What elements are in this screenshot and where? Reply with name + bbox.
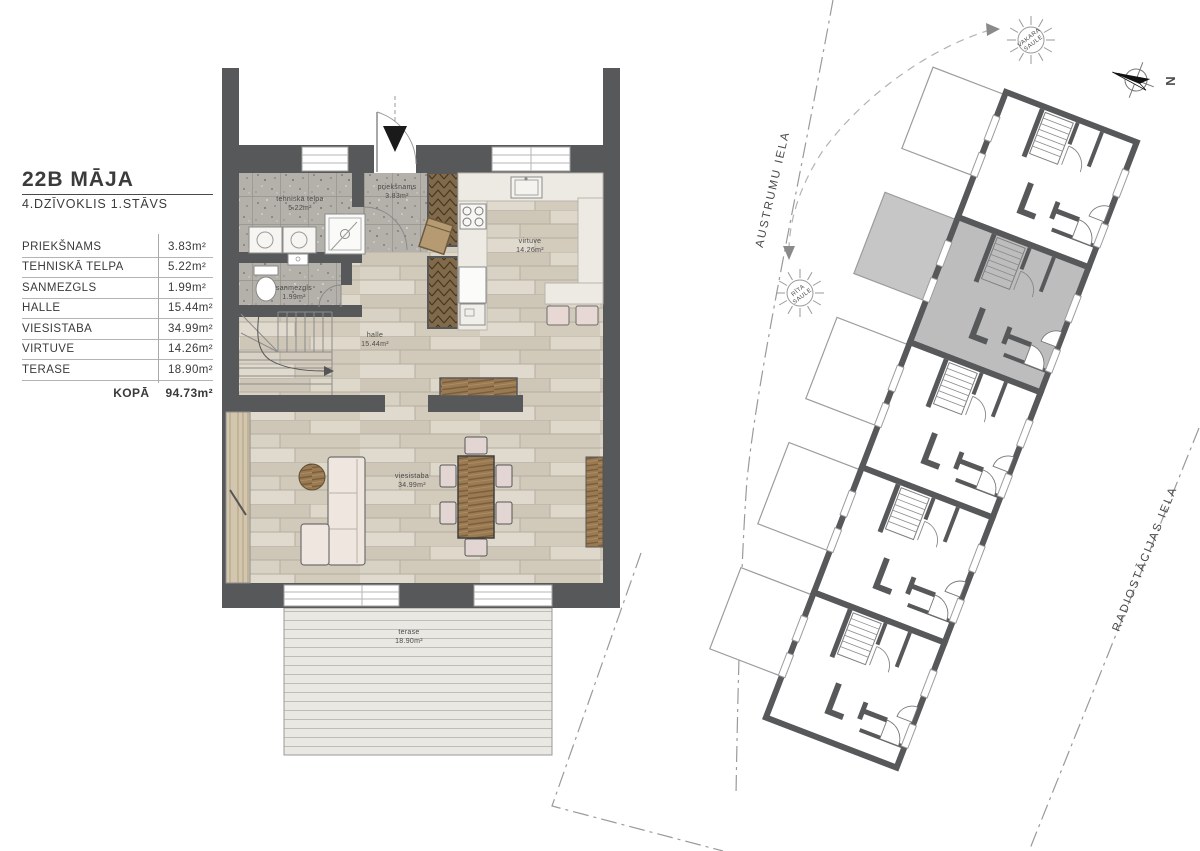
coffee-table	[299, 464, 325, 490]
label-tehniska-telpa: tehniskā telpa	[276, 196, 323, 203]
terrace-door-sill	[226, 412, 250, 583]
label-terase-area: 18.90m²	[395, 638, 423, 645]
label-terase: terase	[398, 629, 419, 636]
site-plan: VAKARA SAULE RĪTA SAULE	[552, 0, 1199, 851]
label-prieksnams-area: 3.83m²	[385, 193, 409, 200]
north-compass-icon	[1106, 53, 1161, 104]
shower	[325, 214, 365, 254]
label-viesistaba: viesistaba	[395, 473, 429, 480]
apartment-plan: tehniskā telpa 5.22m² priekšnams 3.83m² …	[222, 68, 620, 755]
label-virtuve-area: 14.26m²	[516, 247, 544, 254]
label-halle-area: 15.44m²	[361, 341, 389, 348]
label-sanmezgls: sanmezgls	[276, 285, 312, 292]
dishwasher	[460, 304, 485, 325]
label-virtuve: virtuve	[519, 238, 542, 245]
bar-stool	[576, 306, 598, 325]
sun-path-arrow-west	[783, 246, 795, 260]
tall-cabinet	[578, 198, 603, 283]
morning-sun-icon: RĪTA SAULE	[776, 269, 824, 317]
street-label-austrumu: AUSTRUMU IELA	[754, 130, 793, 249]
sideboard	[440, 378, 517, 396]
site-building	[694, 64, 1140, 769]
label-prieksnams: priekšnams	[378, 184, 417, 191]
north-label: N	[1163, 76, 1178, 85]
laundry-machines	[249, 227, 316, 253]
label-tehniska-telpa-area: 5.22m²	[288, 205, 312, 212]
bar-counter	[545, 283, 603, 304]
floor-plan-sheet: 22B MĀJA 4.DZĪVOKLIS 1.STĀVS PRIEKŠNAMS …	[0, 0, 1200, 851]
label-viesistaba-area: 34.99m²	[398, 482, 426, 489]
sun-path-arrow-east	[986, 23, 1000, 36]
evening-sun-icon: VAKARA SAULE	[1007, 16, 1055, 64]
label-sanmezgls-area: 1.99m²	[282, 294, 306, 301]
tv-console	[586, 457, 603, 547]
label-halle: halle	[367, 332, 383, 339]
drawing-canvas: tehniskā telpa 5.22m² priekšnams 3.83m² …	[0, 0, 1200, 851]
street-label-radiostacijas: RADIOSTĀCIJAS IELA	[1111, 485, 1180, 634]
wardrobe	[428, 257, 458, 328]
dining-table	[458, 456, 494, 538]
fridge	[459, 267, 486, 303]
bar-stool	[547, 306, 569, 325]
